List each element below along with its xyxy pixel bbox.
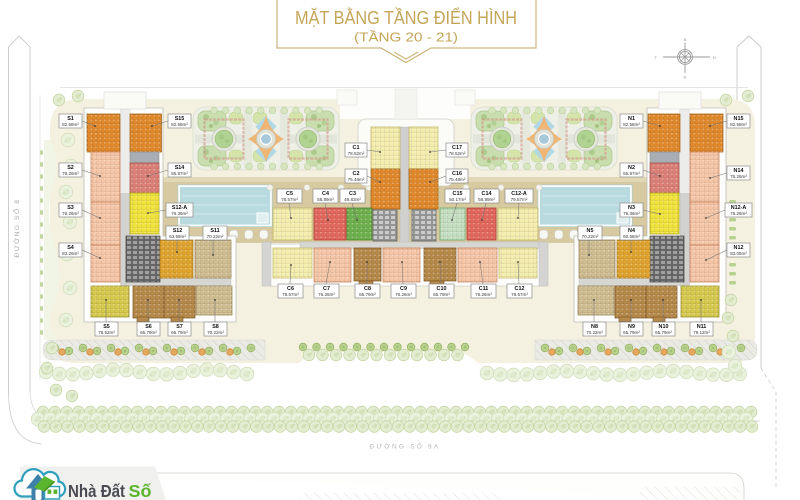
svg-text:76.26m²: 76.26m² [730,174,747,179]
svg-text:79.12m²: 79.12m² [693,330,710,335]
svg-text:Số: Số [129,481,152,500]
svg-text:Nhà Đất: Nhà Đất [68,481,125,500]
svg-text:70.22m²: 70.22m² [582,234,599,239]
svg-text:76.26m²: 76.26m² [730,211,747,216]
svg-text:60.58m²: 60.58m² [623,234,640,239]
svg-text:82.58m²: 82.58m² [171,122,188,127]
svg-text:(TẦNG 20 - 21): (TẦNG 20 - 21) [354,30,458,45]
svg-text:78.52m²: 78.52m² [449,151,466,156]
svg-text:70.22m²: 70.22m² [207,330,224,335]
svg-text:76.26m²: 76.26m² [318,292,335,297]
svg-text:76.26m²: 76.26m² [475,292,492,297]
svg-text:78.52m²: 78.52m² [98,330,115,335]
svg-text:83.05m²: 83.05m² [730,251,747,256]
svg-text:70.22m²: 70.22m² [207,234,224,239]
svg-text:75.48m²: 75.48m² [348,177,365,182]
svg-text:78.52m²: 78.52m² [348,151,365,156]
svg-text:78.57m²: 78.57m² [282,292,299,297]
svg-text:76.26m²: 76.26m² [62,211,79,216]
svg-text:76.36m²: 76.36m² [623,211,640,216]
svg-text:75.48m²: 75.48m² [449,177,466,182]
svg-text:MẶT BẰNG TẦNG ĐIỂN HÌNH: MẶT BẰNG TẦNG ĐIỂN HÌNH [295,7,517,28]
svg-text:76.26m²: 76.26m² [395,292,412,297]
svg-text:50.17m²: 50.17m² [449,197,466,202]
svg-text:82.58m²: 82.58m² [623,122,640,127]
svg-text:70.22m²: 70.22m² [586,330,603,335]
svg-text:65.79m²: 65.79m² [171,330,188,335]
svg-text:78.57m²: 78.57m² [281,197,298,202]
svg-text:76.26m²: 76.26m² [62,171,79,176]
svg-text:65.79m²: 65.79m² [655,330,672,335]
svg-text:65.79m²: 65.79m² [140,330,157,335]
svg-text:82.58m²: 82.58m² [62,122,79,127]
svg-text:B: B [684,37,687,42]
svg-text:78.57m²: 78.57m² [511,292,528,297]
svg-text:Đ: Đ [713,55,716,60]
svg-text:65.79m²: 65.79m² [433,292,450,297]
svg-text:58.89m²: 58.89m² [478,197,495,202]
svg-text:58.89m²: 58.89m² [317,197,334,202]
svg-text:63.59m²: 63.59m² [169,234,186,239]
svg-text:82.58m²: 82.58m² [730,122,747,127]
svg-text:83.26m²: 83.26m² [62,251,79,256]
svg-text:55.87m²: 55.87m² [171,171,188,176]
svg-text:65.79m²: 65.79m² [623,330,640,335]
svg-text:76.36m²: 76.36m² [171,211,188,216]
svg-text:79.57m²: 79.57m² [511,197,528,202]
svg-text:49.83m²: 49.83m² [344,197,361,202]
svg-text:N: N [684,75,687,80]
svg-text:65.79m²: 65.79m² [359,292,376,297]
svg-text:55.87m²: 55.87m² [623,171,640,176]
